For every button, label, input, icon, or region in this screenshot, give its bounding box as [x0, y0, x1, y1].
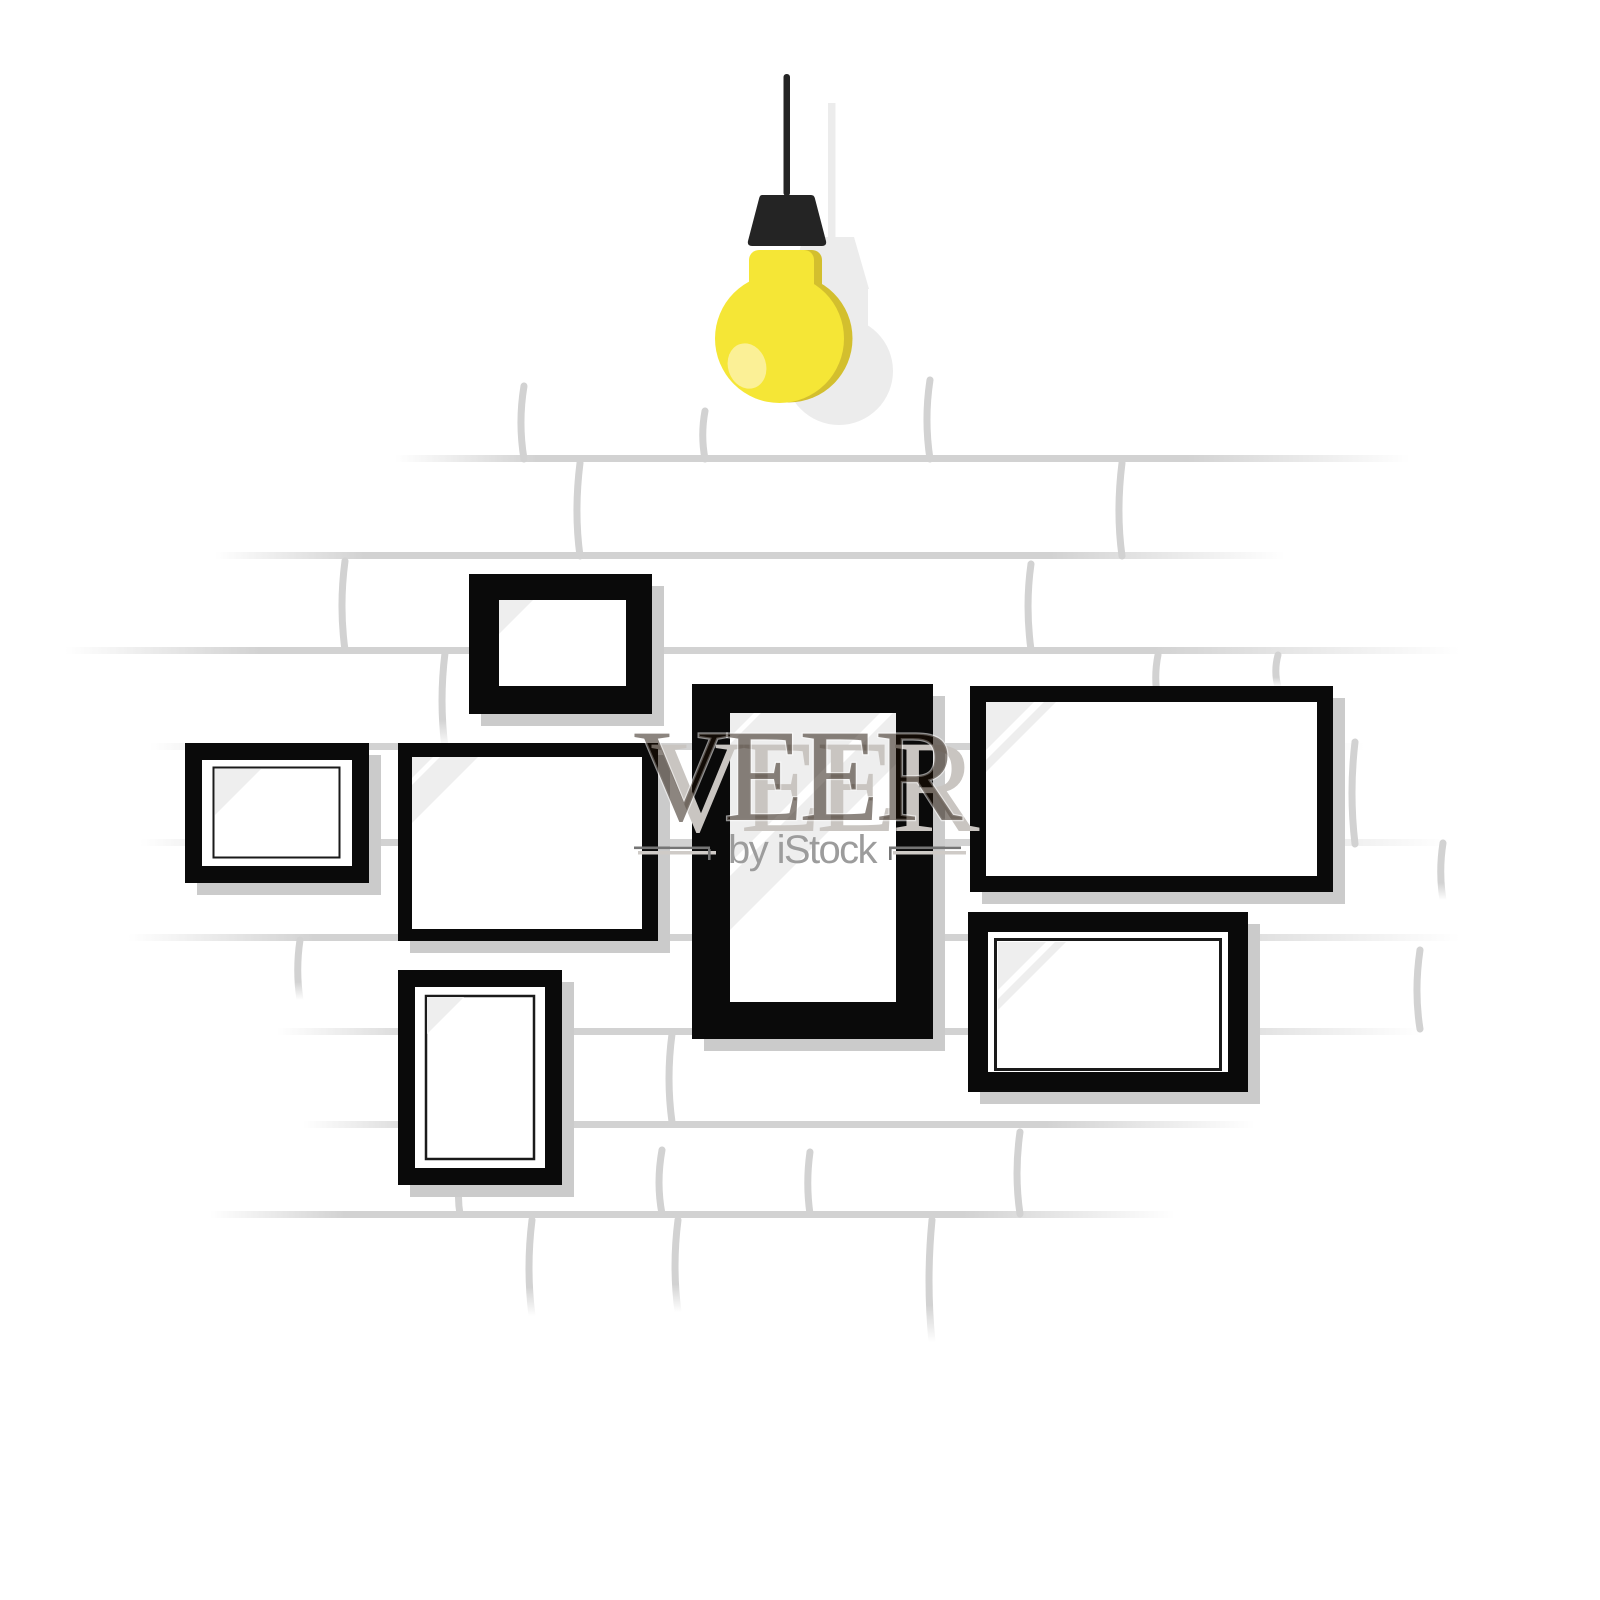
svg-text:VEER: VEER: [633, 702, 963, 849]
svg-text:by iStock: by iStock: [728, 828, 878, 872]
